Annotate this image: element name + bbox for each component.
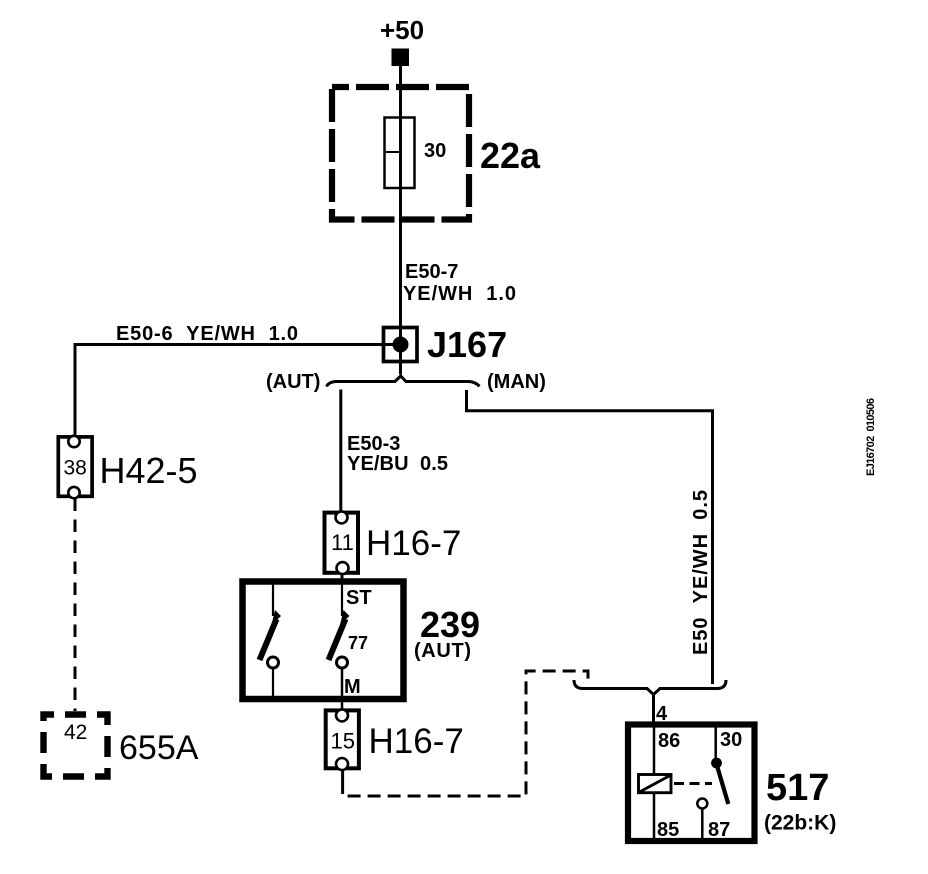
svg-text:(AUT): (AUT) [414,640,471,662]
svg-text:(22b:K): (22b:K) [764,812,836,835]
svg-text:E50-6 YE/WH 1.0: E50-6 YE/WH 1.0 [116,323,298,345]
svg-text:ST: ST [346,587,372,609]
svg-text:J167: J167 [427,324,507,365]
svg-text:30: 30 [424,140,446,162]
svg-text:YE/BU 0.5: YE/BU 0.5 [347,453,448,475]
svg-text:38: 38 [64,457,87,480]
svg-text:(AUT): (AUT) [266,371,320,393]
svg-text:YE/WH 1.0: YE/WH 1.0 [403,283,516,305]
svg-text:11: 11 [331,530,354,555]
svg-text:30: 30 [720,729,742,751]
svg-text:E50-3: E50-3 [347,433,400,455]
svg-text:H16-7: H16-7 [366,524,461,563]
svg-text:85: 85 [657,819,679,841]
svg-text:517: 517 [766,767,829,809]
svg-text:42: 42 [64,721,87,744]
svg-text:655A: 655A [119,729,199,767]
svg-text:H16-7: H16-7 [369,722,464,761]
svg-text:H42-5: H42-5 [100,450,198,491]
svg-text:E50-7: E50-7 [405,261,458,283]
svg-text:15: 15 [331,729,355,754]
svg-text:86: 86 [658,730,680,752]
svg-text:22a: 22a [480,135,541,176]
svg-text:M: M [344,676,361,698]
svg-text:77: 77 [348,633,368,653]
svg-text:239: 239 [420,604,480,645]
svg-text:E50 YE/WH 0.5: E50 YE/WH 0.5 [690,490,712,655]
svg-text:(MAN): (MAN) [487,371,546,393]
svg-text:EJ16702 010506: EJ16702 010506 [865,398,877,476]
svg-text:+50: +50 [380,15,424,45]
svg-text:87: 87 [708,819,730,841]
